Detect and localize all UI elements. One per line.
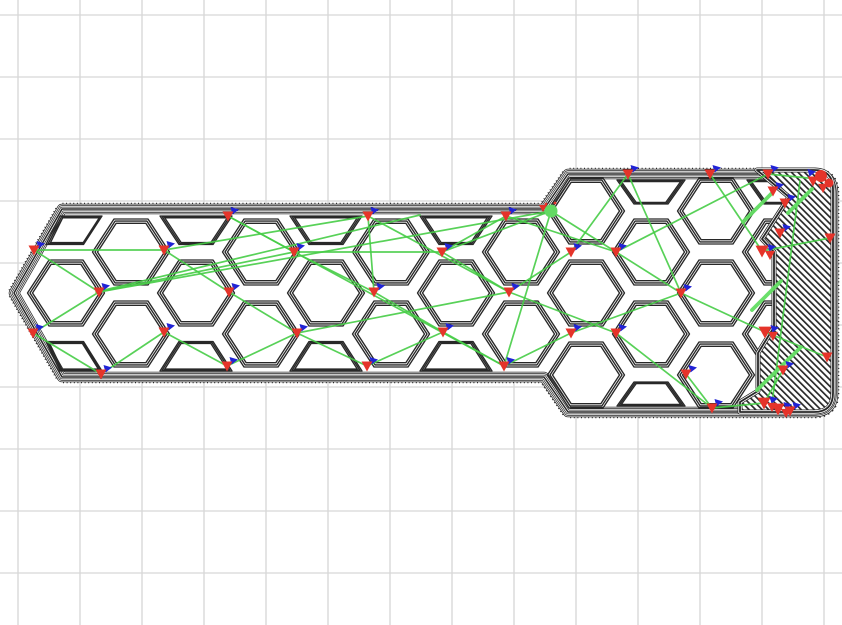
slicer-preview-viewport[interactable]	[0, 0, 842, 625]
gcode-preview-canvas[interactable]	[0, 0, 842, 625]
seam-dot	[554, 202, 557, 205]
tool-position-dot	[545, 205, 558, 218]
part-outer-perimeters	[14, 174, 833, 412]
seam-dot	[545, 203, 548, 206]
retraction-cluster-blob	[815, 170, 827, 182]
